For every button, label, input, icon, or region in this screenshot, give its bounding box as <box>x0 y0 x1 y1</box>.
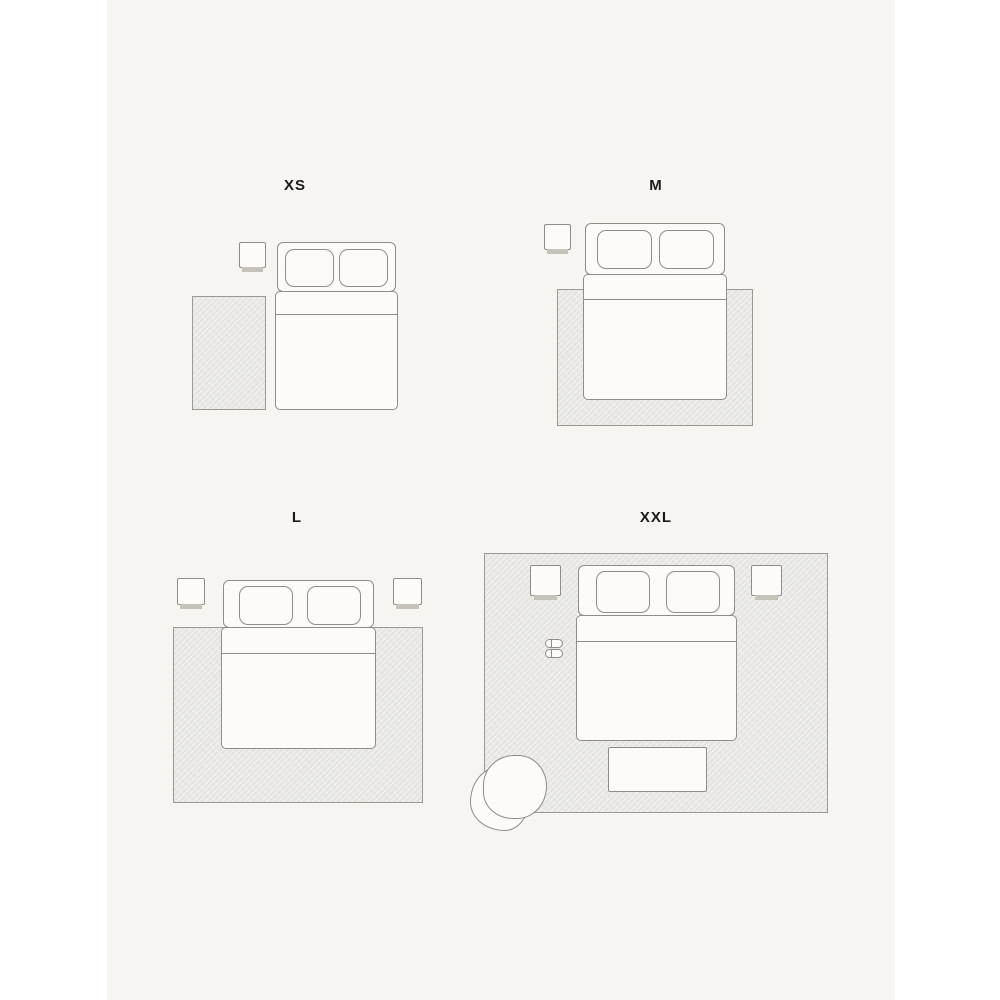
pillow-left-icon <box>596 571 650 613</box>
bed-headboard <box>578 565 735 616</box>
slipper-icon <box>545 649 563 658</box>
panel-xxl: XXL <box>0 0 1000 1000</box>
bench-icon <box>608 747 707 792</box>
slipper-icon <box>545 639 563 648</box>
armchair-icon <box>470 755 548 833</box>
nightstand-left-icon <box>530 565 561 596</box>
bed-fold-line <box>577 641 736 642</box>
nightstand-right-icon <box>751 565 782 596</box>
bed-icon <box>578 565 735 741</box>
size-label-xxl: XXL <box>611 509 701 526</box>
pillow-right-icon <box>666 571 720 613</box>
rug-size-guide: XS M L <box>0 0 1000 1000</box>
armchair-seat <box>483 755 547 819</box>
bed-duvet <box>576 615 737 741</box>
